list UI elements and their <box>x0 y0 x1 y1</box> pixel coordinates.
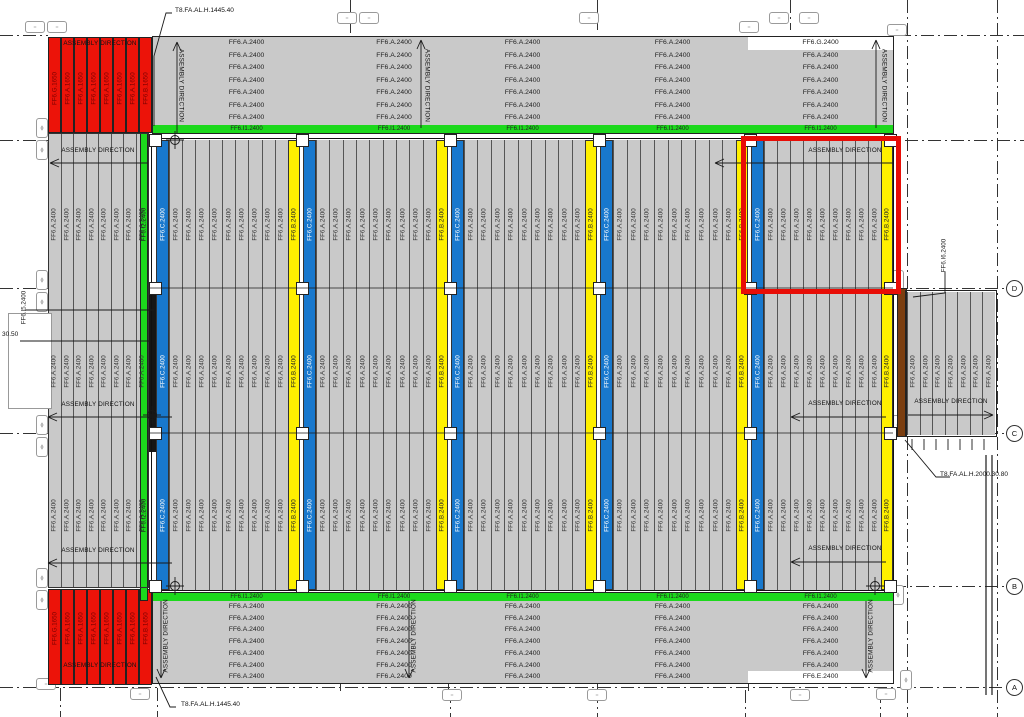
assembly-direction-label: ASSEMBLY DIRECTION <box>48 662 152 669</box>
panel-label: FF6.B.2400 <box>587 193 596 257</box>
ridge-cell: FF6.I1.2400 <box>153 593 340 601</box>
assembly-direction-label: ASSEMBLY DIRECTION <box>410 603 419 673</box>
grid-pad <box>790 689 810 701</box>
panel-label: FF6.A.2400 <box>921 340 930 404</box>
band-cell: FF6.A.2400 <box>597 112 748 126</box>
panel-label: FF6.A.1650 <box>76 57 85 121</box>
panel-label: FF6.A.2400 <box>332 484 341 548</box>
band-cell: FF6.A.2400 <box>340 37 448 51</box>
panel-label: FF6.A.2400 <box>574 193 583 257</box>
panel-label: FF6.A.2400 <box>75 193 84 257</box>
panel-label: FF6.B.1650 <box>141 57 150 121</box>
panel-label: FF6.A.2400 <box>198 484 207 548</box>
panel-label: FF6.A.2400 <box>670 193 679 257</box>
grid-line-horizontal <box>0 687 1006 688</box>
grid-pad <box>887 24 907 36</box>
panel-label: FF6.A.2400 <box>670 340 679 404</box>
connector-square <box>884 580 897 593</box>
panel-label: FF6.G.1650 <box>50 597 59 661</box>
panel-label: FF6.A.2400 <box>125 193 134 257</box>
panel-label: FF6.A.2400 <box>211 193 220 257</box>
grid-pad <box>36 118 48 138</box>
panel-label: FF6.A.2400 <box>831 340 840 404</box>
panel-label: FF6.A.2400 <box>615 484 624 548</box>
connector-square <box>444 282 457 295</box>
grid-pad <box>876 688 896 700</box>
panel-label: FF6.C.2400 <box>158 484 167 548</box>
panel-label: FF6.A.2400 <box>831 484 840 548</box>
panel-label: FF6.A.2400 <box>493 340 502 404</box>
panel-label: FF6.A.2400 <box>345 193 354 257</box>
panel-label: FF6.A.2400 <box>385 340 394 404</box>
connector-square <box>593 282 606 295</box>
panel-label: FF6.A.1650 <box>89 57 98 121</box>
panel-label: FF6.B.2400 <box>290 340 299 404</box>
floor-plan: T8.FA.AL.H.1445.40 T8.FA.AL.H.1445.40 T8… <box>0 0 1024 717</box>
ridge-cell: FF6.I1.2400 <box>597 125 748 133</box>
grid-bubble: A <box>1006 679 1023 696</box>
assembly-direction-label: ASSEMBLY DIRECTION <box>162 603 171 673</box>
panel-label: FF6.A.1650 <box>102 57 111 121</box>
band-cell: FF6.A.2400 <box>448 75 597 89</box>
panel-label: FF6.A.2400 <box>547 340 556 404</box>
connector-square <box>296 580 309 593</box>
panel-label: FF6.A.2400 <box>656 193 665 257</box>
panel-label: FF6.A.2400 <box>697 193 706 257</box>
panel-label: FF6.A.2400 <box>656 340 665 404</box>
grid-bubble: B <box>1006 578 1023 595</box>
panel-label: FF6.A.2400 <box>560 484 569 548</box>
connector-square <box>149 427 162 440</box>
panel-label: FF6.B.2400 <box>438 484 447 548</box>
panel-label: FF6.A.2400 <box>615 193 624 257</box>
grid-pad <box>337 12 357 24</box>
panel-label: FF6.A.2400 <box>533 484 542 548</box>
panel-label: FF6.A.2400 <box>711 340 720 404</box>
panel-label: FF6.A.2400 <box>62 484 71 548</box>
panel-label: FF6.A.2400 <box>643 193 652 257</box>
panel-label: FF6.A.2400 <box>250 193 259 257</box>
connector-square <box>296 427 309 440</box>
panel-label: FF6.A.2400 <box>792 340 801 404</box>
panel-label: FF6.I2.2400 <box>140 484 149 548</box>
panel-label: FF6.A.1650 <box>115 597 124 661</box>
panel-label: FF6.A.2400 <box>984 340 993 404</box>
band-cell: FF6.A.2400 <box>597 671 748 684</box>
grid-pad <box>769 12 789 24</box>
panel-label: FF6.A.2400 <box>959 340 968 404</box>
panel-label: FF6.A.2400 <box>277 340 286 404</box>
panel-label: FF6.A.2400 <box>224 484 233 548</box>
grid-pad <box>36 140 48 160</box>
panel-label: FF6.A.2400 <box>684 193 693 257</box>
panel-label: FF6.A.2400 <box>50 193 59 257</box>
panel-label: FF6.A.2400 <box>198 340 207 404</box>
left-opening-rect <box>8 313 52 409</box>
highlight-red-rectangle <box>741 136 901 294</box>
panel-label: FF6.A.1650 <box>102 597 111 661</box>
connector-square <box>593 134 606 147</box>
assembly-direction-label: ASSEMBLY DIRECTION <box>867 603 876 673</box>
panel-label: FF6.A.2400 <box>125 484 134 548</box>
grid-pad <box>25 21 45 33</box>
panel-label: FF6.B.2400 <box>290 193 299 257</box>
panel-label: FF6.B.2400 <box>738 484 747 548</box>
panel-label: FF6.A.2400 <box>725 340 734 404</box>
ridge-cell: FF6.I1.2400 <box>597 593 748 601</box>
grid-line-vertical <box>60 688 61 717</box>
panel-label: FF6.C.2400 <box>453 193 462 257</box>
connector-square <box>296 282 309 295</box>
panel-label: FF6.A.2400 <box>211 484 220 548</box>
panel-label: FF6.A.2400 <box>345 340 354 404</box>
panel-label: FF6.C.2400 <box>602 193 611 257</box>
panel-label: FF6.B.2400 <box>883 340 892 404</box>
panel-label: FF6.A.2400 <box>264 193 273 257</box>
panel-label: FF6.A.2400 <box>972 340 981 404</box>
panel-label: FF6.A.2400 <box>224 193 233 257</box>
panel-label: FF6.A.2400 <box>520 193 529 257</box>
right-edge-panel-label: FF6.I6.2400 <box>940 224 949 288</box>
grid-pad <box>130 688 150 700</box>
connector-square <box>744 580 757 593</box>
panel-label: FF6.A.1650 <box>76 597 85 661</box>
panel-label: FF6.A.2400 <box>250 484 259 548</box>
callout-top-label: T8.FA.AL.H.1445.40 <box>175 7 234 14</box>
panel-label: FF6.B.2400 <box>587 484 596 548</box>
panel-label: FF6.A.2400 <box>398 340 407 404</box>
connector-square <box>444 580 457 593</box>
panel-label: FF6.C.2400 <box>453 484 462 548</box>
panel-label: FF6.A.2400 <box>805 484 814 548</box>
panel-label: FF6.A.2400 <box>237 193 246 257</box>
panel-label: FF6.A.2400 <box>870 340 879 404</box>
connector-square <box>884 427 897 440</box>
band-cell: FF6.A.2400 <box>597 37 748 51</box>
grid-bubble: D <box>1006 280 1023 297</box>
panel-label: FF6.A.2400 <box>237 340 246 404</box>
band-cell: FF6.A.2400 <box>340 87 448 101</box>
panel-label: FF6.A.2400 <box>766 484 775 548</box>
connector-square <box>149 580 162 593</box>
panel-label: FF6.A.1650 <box>89 597 98 661</box>
band-cell: FF6.A.2400 <box>597 100 748 114</box>
panel-label: FF6.A.2400 <box>493 484 502 548</box>
grid-pad <box>36 590 48 610</box>
panel-label: FF6.B.2400 <box>290 484 299 548</box>
grid-bubble: C <box>1006 425 1023 442</box>
grid-pad <box>442 689 462 701</box>
panel-label: FF6.A.2400 <box>656 484 665 548</box>
grid-line-vertical <box>790 0 791 30</box>
ridge-cell: FF6.I1.2400 <box>340 593 448 601</box>
panel-label: FF6.A.2400 <box>358 340 367 404</box>
ridge-cell: FF6.I1.2400 <box>340 125 448 133</box>
panel-label: FF6.A.2400 <box>466 484 475 548</box>
panel-label: FF6.A.2400 <box>50 340 59 404</box>
panel-label: FF6.A.2400 <box>100 340 109 404</box>
panel-label: FF6.A.2400 <box>171 484 180 548</box>
panel-label: FF6.A.2400 <box>50 484 59 548</box>
grid-pad <box>799 12 819 24</box>
grid-line-horizontal <box>898 35 1024 36</box>
grid-pad <box>36 270 48 290</box>
band-cell: FF6.A.2400 <box>448 87 597 101</box>
dimension-left-label: 30.50 <box>2 331 18 338</box>
assembly-direction-label: ASSEMBLY DIRECTION <box>48 147 148 154</box>
panel-label: FF6.A.2400 <box>264 484 273 548</box>
panel-label: FF6.A.2400 <box>507 340 516 404</box>
panel-label: FF6.A.2400 <box>332 340 341 404</box>
panel-label: FF6.A.2400 <box>412 193 421 257</box>
panel-label: FF6.A.2400 <box>412 340 421 404</box>
panel-label: FF6.A.2400 <box>533 193 542 257</box>
panel-label: FF6.C.2400 <box>453 340 462 404</box>
band-cell: FF6.A.2400 <box>748 50 893 64</box>
band-cell: FF6.A.2400 <box>748 62 893 76</box>
panel-label: FF6.A.2400 <box>697 484 706 548</box>
band-cell: FF6.A.2400 <box>448 37 597 51</box>
band-cell: FF6.A.2400 <box>748 112 893 126</box>
panel-label: FF6.A.2400 <box>87 340 96 404</box>
band-cell: FF6.A.2400 <box>748 75 893 89</box>
panel-label: FF6.A.1650 <box>115 57 124 121</box>
panel-label: FF6.A.2400 <box>385 484 394 548</box>
band-cell: FF6.A.2400 <box>340 100 448 114</box>
panel-label: FF6.A.2400 <box>560 193 569 257</box>
panel-label: FF6.A.2400 <box>520 340 529 404</box>
connector-square <box>149 134 162 147</box>
panel-label: FF6.A.2400 <box>947 340 956 404</box>
assembly-direction-label: ASSEMBLY DIRECTION <box>905 398 997 405</box>
band-cell: FF6.A.2400 <box>748 100 893 114</box>
panel-label: FF6.A.2400 <box>934 340 943 404</box>
panel-label: FF6.A.2400 <box>250 340 259 404</box>
panel-label: FF6.A.2400 <box>533 340 542 404</box>
panel-label: FF6.A.2400 <box>711 484 720 548</box>
panel-label: FF6.A.2400 <box>211 340 220 404</box>
panel-label: FF6.A.2400 <box>87 193 96 257</box>
panel-label: FF6.G.1650 <box>50 57 59 121</box>
assembly-direction-label: ASSEMBLY DIRECTION <box>48 40 152 47</box>
panel-label: FF6.A.2400 <box>818 340 827 404</box>
panel-label: FF6.A.2400 <box>277 484 286 548</box>
panel-label: FF6.A.2400 <box>779 340 788 404</box>
assembly-direction-label: ASSEMBLY DIRECTION <box>785 545 905 552</box>
panel-label: FF6.A.2400 <box>237 484 246 548</box>
panel-label: FF6.A.2400 <box>684 340 693 404</box>
panel-label: FF6.A.2400 <box>372 484 381 548</box>
panel-label: FF6.A.2400 <box>425 193 434 257</box>
assembly-direction-label: ASSEMBLY DIRECTION <box>48 401 148 408</box>
panel-label: FF6.A.2400 <box>684 484 693 548</box>
panel-label: FF6.C.2400 <box>305 340 314 404</box>
panel-label: FF6.A.2400 <box>87 484 96 548</box>
panel-label: FF6.A.2400 <box>358 484 367 548</box>
panel-label: FF6.A.2400 <box>629 193 638 257</box>
panel-label: FF6.A.2400 <box>909 340 918 404</box>
panel-label: FF6.A.2400 <box>480 484 489 548</box>
panel-label: FF6.A.2400 <box>277 193 286 257</box>
ridge-cell: FF6.I1.2400 <box>748 125 893 133</box>
panel-label: FF6.A.2400 <box>857 340 866 404</box>
band-cell: FF6.A.2400 <box>448 50 597 64</box>
band-cell: FF6.A.2400 <box>153 671 340 684</box>
band-cell: FF6.A.2400 <box>340 112 448 126</box>
panel-label: FF6.A.2400 <box>643 484 652 548</box>
panel-label: FF6.A.2400 <box>805 340 814 404</box>
grid-pad <box>36 568 48 588</box>
grid-line-horizontal <box>905 140 1024 141</box>
panel-label: FF6.A.1650 <box>63 597 72 661</box>
panel-label: FF6.A.2400 <box>711 193 720 257</box>
grid-pad <box>47 21 67 33</box>
connector-square <box>149 282 162 295</box>
panel-label: FF6.A.2400 <box>100 484 109 548</box>
panel-label: FF6.A.2400 <box>112 340 121 404</box>
panel-label: FF6.A.2400 <box>412 484 421 548</box>
grid-pad <box>359 12 379 24</box>
assembly-direction-label: ASSEMBLY DIRECTION <box>177 46 186 126</box>
band-cell: FF6.A.2400 <box>448 671 597 684</box>
panel-label: FF6.C.2400 <box>305 484 314 548</box>
panel-label: FF6.A.2400 <box>725 484 734 548</box>
panel-label: FF6.A.2400 <box>574 484 583 548</box>
panel-label: FF6.A.2400 <box>520 484 529 548</box>
panel-label: FF6.A.2400 <box>332 193 341 257</box>
panel-label: FF6.A.2400 <box>425 484 434 548</box>
grid-pad <box>36 415 48 435</box>
panel-label: FF6.A.2400 <box>725 193 734 257</box>
panel-label: FF6.A.2400 <box>171 340 180 404</box>
panel-label: FF6.A.2400 <box>100 193 109 257</box>
ridge-cell: FF6.I1.2400 <box>448 593 597 601</box>
band-cell: FF6.A.2400 <box>340 50 448 64</box>
ridge-cell: FF6.I1.2400 <box>448 125 597 133</box>
panel-label: FF6.A.2400 <box>766 340 775 404</box>
panel-label: FF6.A.2400 <box>547 484 556 548</box>
panel-label: FF6.A.2400 <box>184 193 193 257</box>
band-cell: FF6.A.2400 <box>597 50 748 64</box>
panel-label: FF6.B.2400 <box>438 340 447 404</box>
panel-label: FF6.A.2400 <box>62 340 71 404</box>
panel-label: FF6.A.2400 <box>466 340 475 404</box>
grid-line-vertical <box>745 690 746 717</box>
band-cell: FF6.A.2400 <box>340 75 448 89</box>
connector-square <box>296 134 309 147</box>
connector-square <box>444 134 457 147</box>
panel-label: FF6.A.1650 <box>128 597 137 661</box>
panel-label: FF6.C.2400 <box>753 340 762 404</box>
panel-label: FF6.A.2400 <box>629 484 638 548</box>
panel-label: FF6.A.2400 <box>372 193 381 257</box>
band-cell: FF6.A.2400 <box>448 62 597 76</box>
panel-label: FF6.A.2400 <box>792 484 801 548</box>
panel-label: FF6.A.2400 <box>844 484 853 548</box>
assembly-direction-label: ASSEMBLY DIRECTION <box>423 46 432 126</box>
panel-label: FF6.A.2400 <box>779 484 788 548</box>
assembly-direction-label: ASSEMBLY DIRECTION <box>48 547 148 554</box>
panel-label: FF6.A.2400 <box>345 484 354 548</box>
panel-label: FF6.A.2400 <box>870 484 879 548</box>
panel-label: FF6.A.2400 <box>466 193 475 257</box>
ridge-cell: FF6.I1.2400 <box>153 125 340 133</box>
grid-pad <box>36 292 48 312</box>
panel-label: FF6.A.2400 <box>857 484 866 548</box>
panel-label: FF6.B.2400 <box>883 484 892 548</box>
panel-label: FF6.A.2400 <box>574 340 583 404</box>
band-cell: FF6.A.2400 <box>340 671 448 684</box>
panel-label: FF6.B.2400 <box>738 340 747 404</box>
panel-label: FF6.A.2400 <box>372 340 381 404</box>
assembly-direction-label: ASSEMBLY DIRECTION <box>785 400 905 407</box>
panel-label: FF6.A.2400 <box>547 193 556 257</box>
left-edge-panel-label: FF6.I5.2400 <box>20 276 29 340</box>
panel-label: FF6.B.2400 <box>587 340 596 404</box>
grid-pad <box>900 670 912 690</box>
panel-label: FF6.A.2400 <box>198 193 207 257</box>
panel-label: FF6.C.2400 <box>158 193 167 257</box>
panel-label: FF6.A.2400 <box>318 484 327 548</box>
panel-label: FF6.A.2400 <box>184 484 193 548</box>
panel-label: FF6.A.2400 <box>398 193 407 257</box>
panel-label: FF6.A.2400 <box>818 484 827 548</box>
panel-label: FF6.A.2400 <box>112 484 121 548</box>
panel-label: FF6.C.2400 <box>602 484 611 548</box>
band-cell: FF6.A.2400 <box>448 112 597 126</box>
panel-label: FF6.A.2400 <box>507 484 516 548</box>
band-cell: FF6.A.2400 <box>597 62 748 76</box>
panel-label: FF6.A.2400 <box>670 484 679 548</box>
band-cell: FF6.A.2400 <box>748 87 893 101</box>
panel-label: FF6.I2.2400 <box>140 193 149 257</box>
band-cell: FF6.A.2400 <box>448 100 597 114</box>
panel-label: FF6.A.2400 <box>125 340 134 404</box>
panel-label: FF6.C.2400 <box>305 193 314 257</box>
panel-label: FF6.A.2400 <box>560 340 569 404</box>
grid-line-vertical <box>157 688 158 717</box>
panel-label: FF6.A.2400 <box>507 193 516 257</box>
panel-label: FF6.A.1650 <box>63 57 72 121</box>
band-cell: FF6.A.2400 <box>597 75 748 89</box>
grid-pad <box>36 437 48 457</box>
band-cell: FF6.A.2400 <box>340 62 448 76</box>
grid-line-vertical <box>997 0 998 717</box>
grid-line-horizontal <box>893 586 1006 587</box>
panel-label: FF6.A.2400 <box>171 193 180 257</box>
connector-square <box>593 580 606 593</box>
panel-label: FF6.C.2400 <box>602 340 611 404</box>
panel-label: FF6.A.2400 <box>137 340 146 404</box>
panel-label: FF6.A.1650 <box>128 57 137 121</box>
panel-label: FF6.B.2400 <box>438 193 447 257</box>
panel-label: FF6.A.2400 <box>184 340 193 404</box>
panel-label: FF6.A.2400 <box>75 340 84 404</box>
band-cell: FF6.G.2400 <box>748 37 893 51</box>
grid-line-horizontal <box>893 288 1006 289</box>
callout-right-label: T8.FA.AL.H.2000.30.80 <box>940 471 1008 478</box>
panel-label: FF6.A.2400 <box>493 193 502 257</box>
panel-label: FF6.A.2400 <box>480 193 489 257</box>
callout-bottom-label: T8.FA.AL.H.1445.40 <box>181 701 240 708</box>
connector-square <box>444 427 457 440</box>
connector-square <box>593 427 606 440</box>
panel-label: FF6.A.2400 <box>318 340 327 404</box>
panel-label: FF6.B.1650 <box>141 597 150 661</box>
band-cell: FF6.E.2400 <box>748 671 893 684</box>
grid-line-horizontal <box>0 35 48 36</box>
panel-label: FF6.A.2400 <box>318 193 327 257</box>
